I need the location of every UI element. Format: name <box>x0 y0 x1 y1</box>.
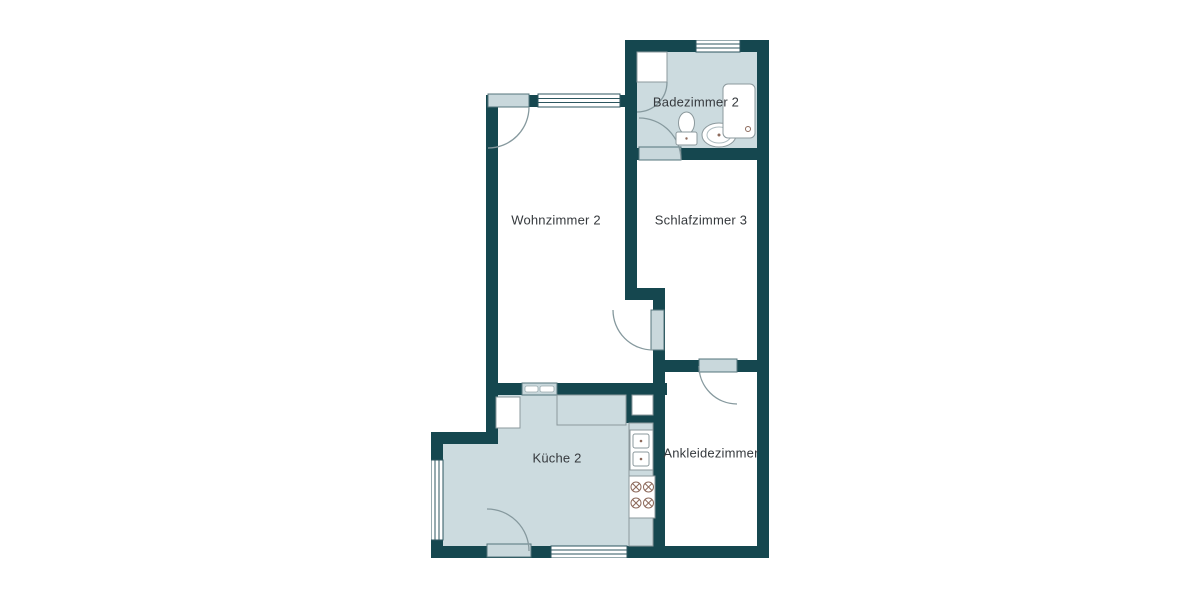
bathtub <box>723 84 755 138</box>
room-label-dressing-room: Ankleidezimmer <box>663 446 758 461</box>
floorplan-drawing <box>431 40 769 558</box>
floorplan-canvas: Badezimmer 2 Wohnzimmer 2 Schlafzimmer 3… <box>0 0 1200 600</box>
kitchen-cabinet <box>496 397 520 428</box>
pass-through-hatch <box>522 383 557 395</box>
bedroom-floor <box>625 148 757 372</box>
kitchen-double-sink <box>630 430 653 470</box>
wall-divider-upper <box>625 107 637 300</box>
kitchen-stove <box>629 476 655 518</box>
room-label-kitchen: Küche 2 <box>532 451 581 466</box>
window-kitchen-left <box>431 460 443 540</box>
wall-living-bottom <box>486 383 667 395</box>
wall-right <box>757 40 769 558</box>
window-bathroom-top <box>696 40 740 52</box>
room-label-bedroom: Schlafzimmer 3 <box>655 213 747 228</box>
floorplan: Badezimmer 2 Wohnzimmer 2 Schlafzimmer 3… <box>431 40 769 558</box>
wall-appliance-stub-bottom <box>626 415 653 423</box>
kitchen-floor-lower <box>443 444 486 558</box>
kitchen-counter-top <box>557 395 626 425</box>
kitchen-appliance <box>632 395 653 415</box>
room-label-living-room: Wohnzimmer 2 <box>511 213 601 228</box>
room-label-bathroom: Badezimmer 2 <box>653 95 739 110</box>
window-living-top <box>538 94 620 107</box>
living-room-floor <box>486 95 637 395</box>
window-kitchen-bottom <box>551 546 627 558</box>
